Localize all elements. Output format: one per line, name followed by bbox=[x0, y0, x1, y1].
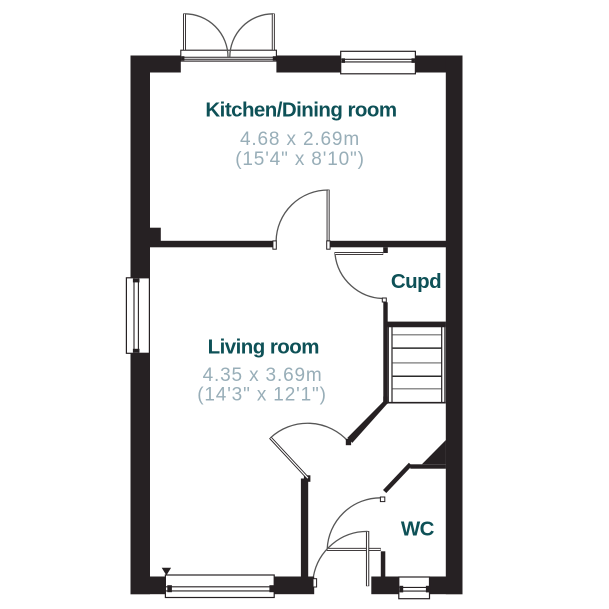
svg-text:Cupd: Cupd bbox=[391, 270, 441, 293]
svg-text:Living room: Living room bbox=[208, 335, 319, 358]
svg-text:(14'3" x 12'1"): (14'3" x 12'1") bbox=[197, 385, 327, 406]
svg-text:WC: WC bbox=[401, 518, 435, 541]
svg-text:(15'4" x 8'10"): (15'4" x 8'10") bbox=[235, 149, 365, 170]
svg-text:4.35 x 3.69m: 4.35 x 3.69m bbox=[203, 365, 323, 386]
svg-text:Kitchen/Dining room: Kitchen/Dining room bbox=[205, 99, 396, 122]
svg-text:4.68 x 2.69m: 4.68 x 2.69m bbox=[240, 129, 360, 150]
